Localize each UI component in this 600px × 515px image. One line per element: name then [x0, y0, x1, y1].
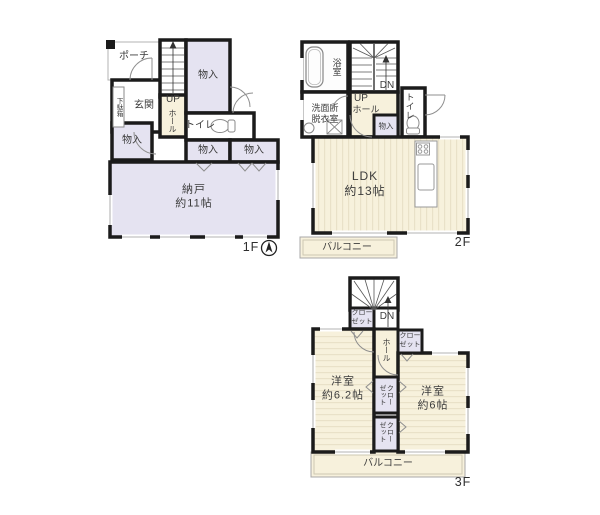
label-ldk: LDK 約13帖 [344, 169, 385, 199]
stove-icon [417, 143, 430, 155]
label-floor-1f: 1F [243, 240, 260, 256]
label-closet-m2: クロー ゼット [379, 422, 394, 443]
label-hall-2f: ホール [352, 104, 379, 115]
label-closet-tl: クロー ゼット [352, 309, 373, 327]
label-storage-c2: 物入 [244, 145, 264, 158]
label-toilet-1f: トイレ [185, 120, 215, 133]
label-storage-top: 物入 [198, 70, 218, 83]
label-hall-3f: ホール [381, 338, 391, 362]
label-room-right: 洋室 約6帖 [417, 385, 448, 413]
floor-2f-plan [300, 42, 471, 258]
kitchen-counter-icon [415, 141, 437, 207]
label-storeroom: 納戸 約11帖 [175, 183, 212, 211]
compass-icon [262, 241, 277, 256]
kitchen-sink-icon [418, 164, 434, 190]
label-dn-3f: DN [380, 311, 394, 324]
label-entrance: 玄関 [134, 100, 154, 113]
label-dn-2f: DN [380, 80, 394, 93]
label-floor-2f: 2F [455, 235, 472, 251]
label-closet-m1: クロー ゼット [379, 385, 394, 406]
label-storage-c1: 物入 [198, 145, 218, 158]
label-toilet-2f: トイレ [403, 93, 414, 120]
label-room-left: 洋室 約6.2帖 [322, 375, 364, 403]
floorplan-drawing [0, 0, 600, 515]
floorplan-page: ポーチ 玄関 下駄箱 UP ホール 物入 トイレ 物入 物入 物入 納戸 約11… [0, 0, 600, 515]
label-up-2f: UP [354, 93, 368, 106]
label-washroom: 洗面所 脱衣室 [311, 103, 338, 126]
label-hall-1f: ホール [167, 109, 177, 133]
label-up-1f: UP [166, 94, 180, 107]
bathtub-icon [306, 47, 323, 87]
label-floor-3f: 3F [455, 475, 472, 491]
label-shoe-cabinet: 下駄箱 [114, 97, 122, 117]
label-bathroom: 浴室 [330, 58, 341, 76]
label-storage-2f: 物入 [379, 121, 394, 130]
label-balcony-2f: バルコニー [322, 242, 372, 255]
label-porch: ポーチ [119, 51, 149, 64]
label-balcony-3f: バルコニー [363, 458, 413, 471]
label-closet-tr: クロー ゼット [400, 332, 421, 350]
label-storage-left: 物入 [122, 135, 142, 148]
